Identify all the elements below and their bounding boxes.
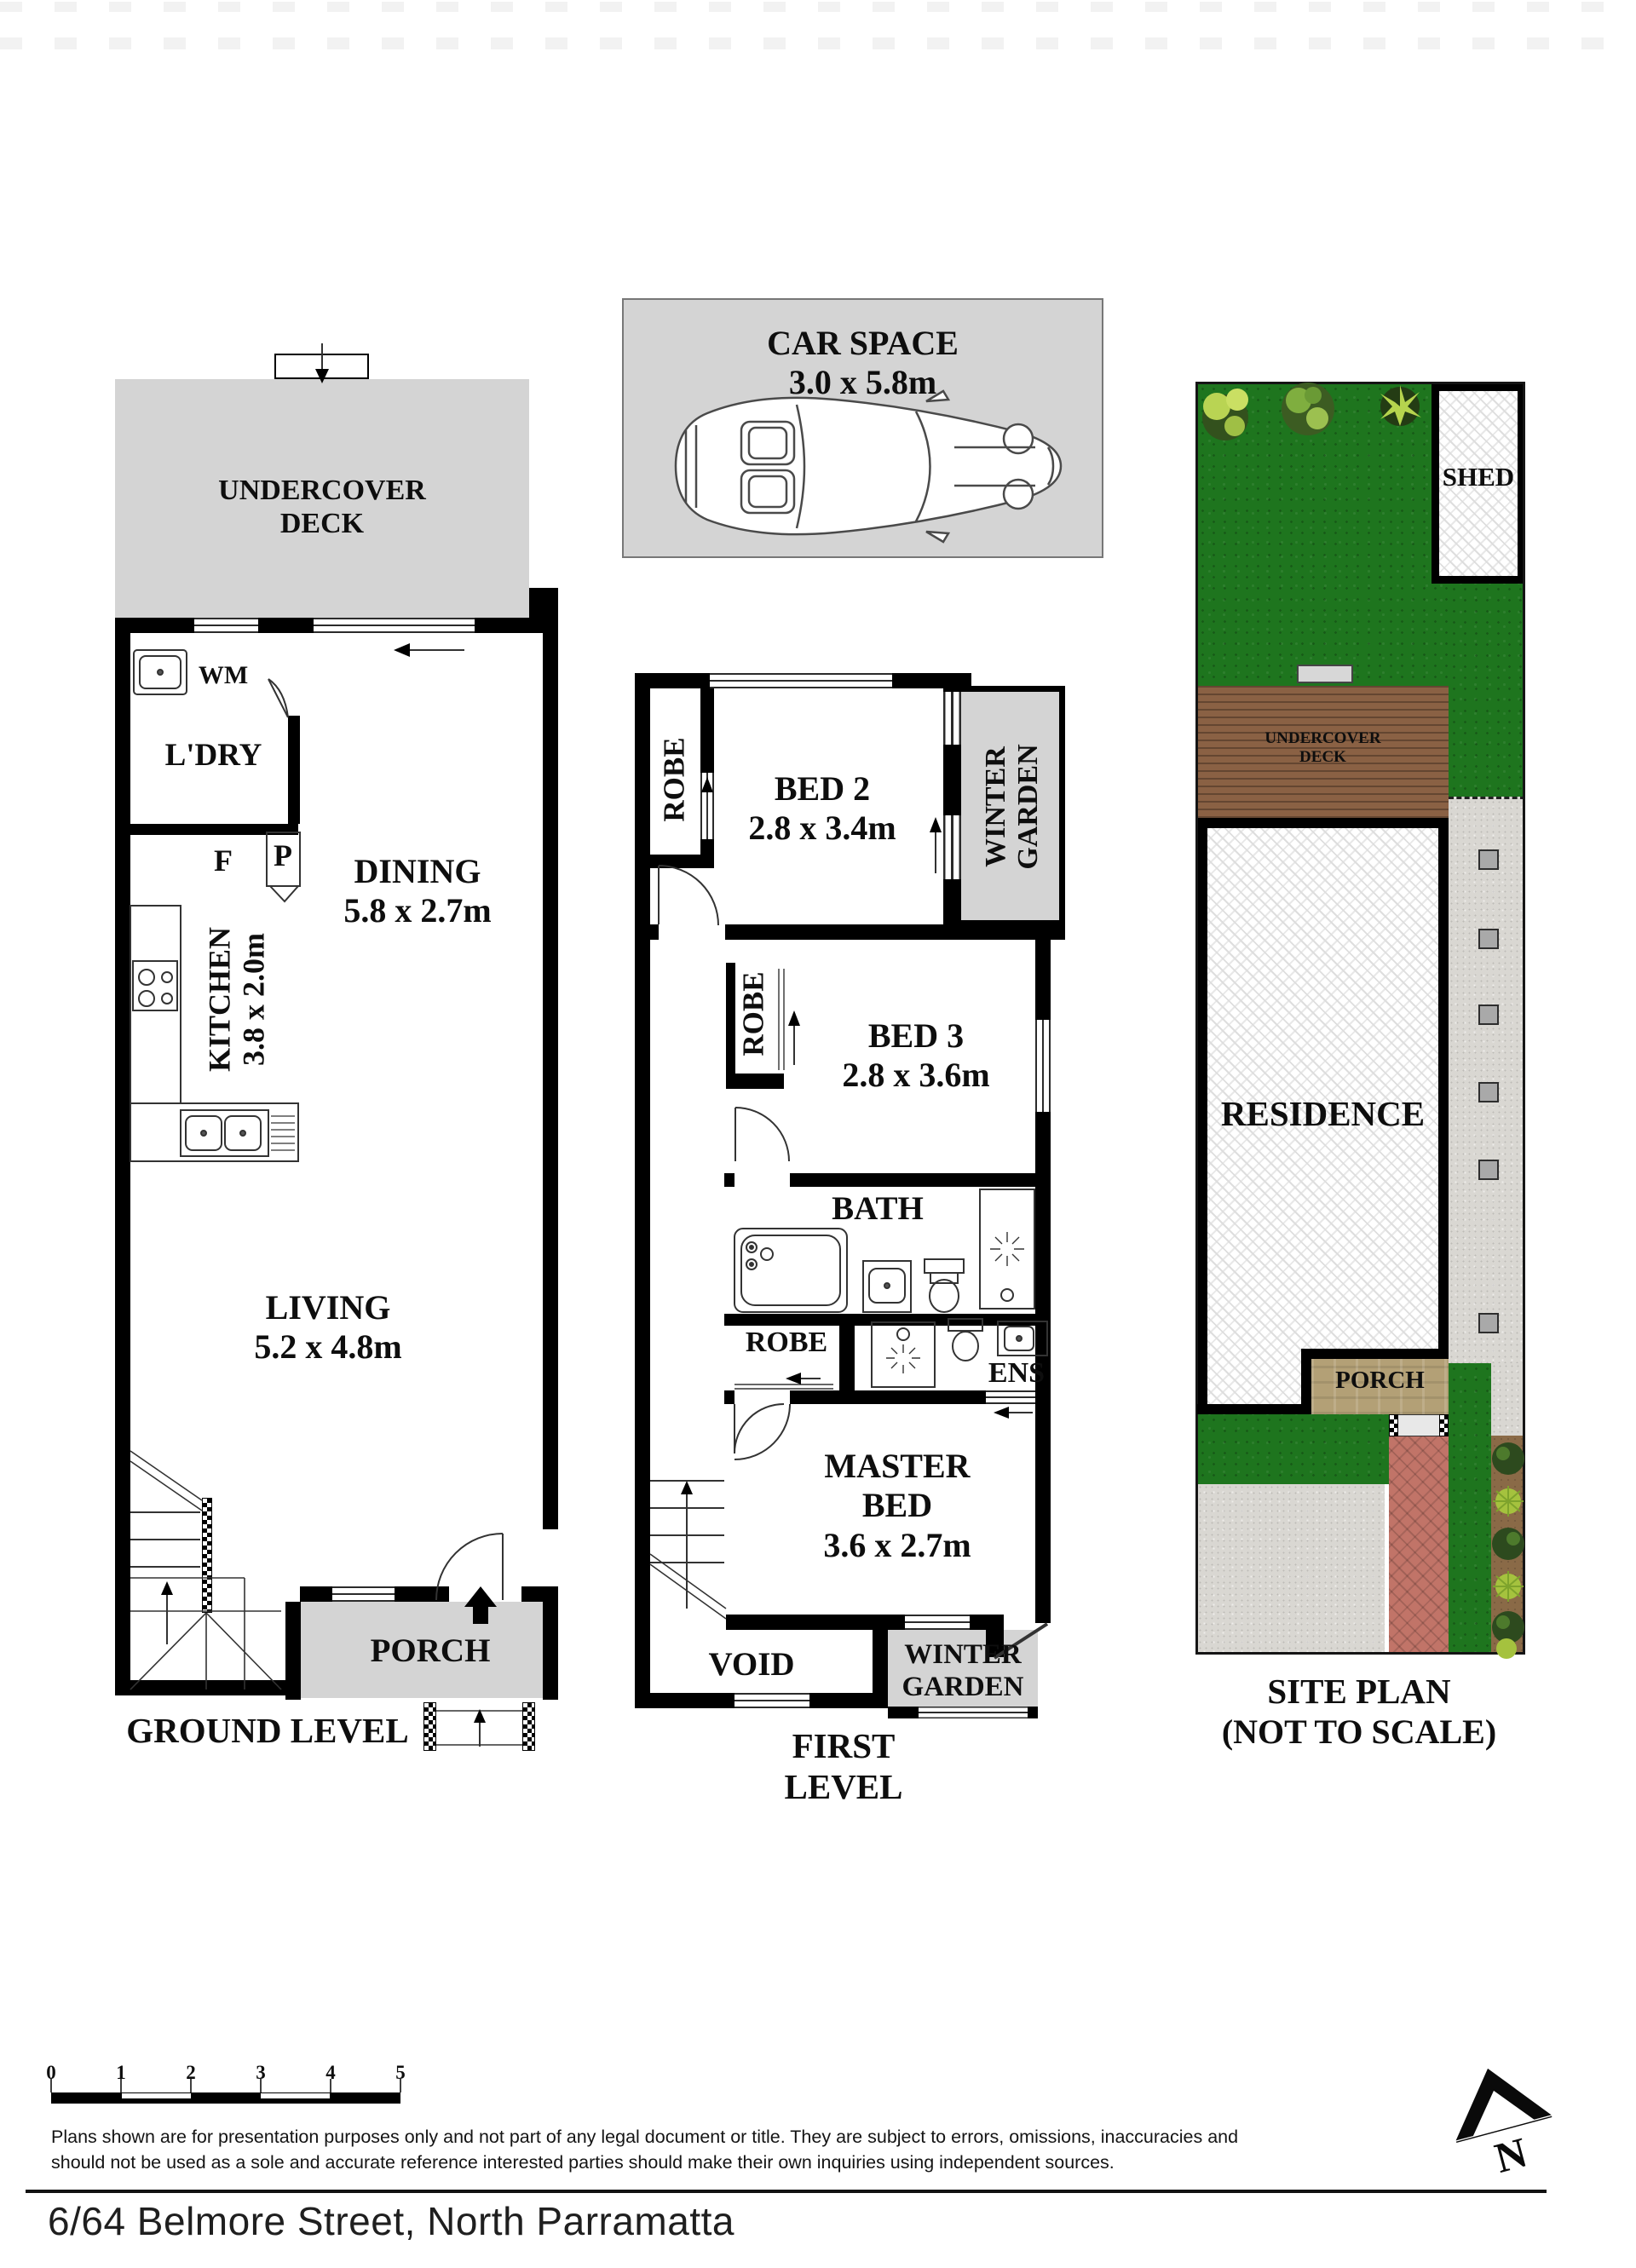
window bbox=[919, 1707, 1028, 1718]
wall bbox=[300, 1586, 332, 1602]
robe-sliding-door bbox=[700, 773, 714, 839]
wall bbox=[115, 618, 194, 633]
wall bbox=[115, 618, 130, 1695]
robe1-label: ROBE bbox=[657, 737, 690, 821]
wall bbox=[529, 588, 558, 618]
scale-seg bbox=[261, 2093, 331, 2103]
window bbox=[1035, 1020, 1051, 1112]
winter-garden-bottom-label: WINTER GARDEN bbox=[888, 1638, 1038, 1704]
ens-label: ENS bbox=[959, 1356, 1074, 1390]
living-dims: 5.2 x 4.8m bbox=[233, 1327, 423, 1367]
wall bbox=[888, 1707, 919, 1718]
bath-label: BATH bbox=[786, 1189, 969, 1228]
wall bbox=[521, 1586, 558, 1602]
shed-label: SHED bbox=[1438, 462, 1518, 492]
gate-post bbox=[1389, 1414, 1398, 1436]
residence-label: RESIDENCE bbox=[1207, 1094, 1438, 1135]
master-name: MASTER BED bbox=[802, 1447, 993, 1526]
window bbox=[943, 692, 961, 745]
wall bbox=[726, 1615, 888, 1630]
wm-label: WM bbox=[196, 661, 251, 691]
bed2-label: BED 2 2.8 x 3.4m bbox=[727, 769, 918, 849]
robe2-label: ROBE bbox=[736, 971, 769, 1056]
north-arrow-icon: N bbox=[1440, 2056, 1564, 2190]
window bbox=[332, 1586, 395, 1602]
window bbox=[734, 1693, 809, 1708]
gate-post bbox=[1439, 1414, 1449, 1436]
wall bbox=[635, 1693, 734, 1708]
living-name: LIVING bbox=[233, 1288, 423, 1327]
wall bbox=[115, 824, 298, 835]
wall bbox=[726, 1074, 784, 1089]
car-space-title: CAR SPACE bbox=[622, 324, 1103, 363]
scale-seg bbox=[330, 2093, 400, 2103]
site-boundary bbox=[1195, 382, 1525, 1655]
wall bbox=[1028, 1707, 1038, 1718]
porch-label: PORCH bbox=[339, 1632, 521, 1670]
dining-label: DINING 5.8 x 2.7m bbox=[322, 852, 513, 931]
wall bbox=[635, 673, 710, 688]
wall bbox=[115, 1680, 300, 1695]
wall bbox=[809, 1693, 888, 1708]
wall bbox=[650, 855, 714, 868]
dining-dims: 5.8 x 2.7m bbox=[322, 891, 513, 930]
kitchen-label: KITCHEN 3.8 x 2.0m bbox=[203, 927, 272, 1072]
master-bed-label: MASTER BED 3.6 x 2.7m bbox=[802, 1447, 993, 1565]
site-plan-title: SITE PLAN bbox=[1191, 1672, 1527, 1713]
wall bbox=[724, 1173, 734, 1187]
void-label: VOID bbox=[676, 1645, 827, 1684]
wall bbox=[635, 673, 650, 1708]
address-title: 6/64 Belmore Street, North Parramatta bbox=[48, 2198, 1241, 2244]
scale-tick-4: 4 bbox=[322, 2062, 339, 2085]
scale-tick-3: 3 bbox=[252, 2062, 269, 2085]
footer-divider bbox=[26, 2190, 1547, 2193]
wall bbox=[724, 1314, 1051, 1326]
wall bbox=[258, 618, 314, 633]
laundry-label: L'DRY bbox=[130, 738, 297, 774]
site-deck-label: UNDERCOVER DECK bbox=[1254, 729, 1391, 767]
wall bbox=[726, 963, 735, 1089]
fridge-label: F bbox=[203, 843, 244, 879]
scale-tick-5: 5 bbox=[392, 2062, 409, 2085]
site-plan-subtitle: (NOT TO SCALE) bbox=[1191, 1713, 1527, 1752]
wall bbox=[395, 1586, 449, 1602]
wall bbox=[1197, 1404, 1311, 1414]
window bbox=[986, 1390, 1035, 1404]
ground-deck-label: UNDERCOVER DECK bbox=[194, 474, 450, 541]
bed3-name: BED 3 bbox=[821, 1016, 1011, 1056]
disclaimer-line-2: should not be used as a sole and accurat… bbox=[51, 2152, 1304, 2173]
bed3-label: BED 3 2.8 x 3.6m bbox=[821, 1016, 1011, 1096]
bed3-dims: 2.8 x 3.6m bbox=[821, 1056, 1011, 1095]
scale-tick-1: 1 bbox=[112, 2062, 130, 2085]
kitchen-dims: 3.8 x 2.0m bbox=[237, 927, 271, 1072]
wall bbox=[700, 688, 714, 773]
wall bbox=[790, 1173, 1051, 1187]
scale-bar bbox=[51, 2092, 400, 2104]
scale-seg bbox=[122, 2093, 192, 2103]
porch-step-pier bbox=[522, 1702, 535, 1751]
scale-tick-2: 2 bbox=[182, 2062, 199, 2085]
wall bbox=[543, 618, 558, 1529]
wall bbox=[285, 1602, 301, 1700]
window bbox=[194, 618, 258, 633]
north-label: N bbox=[1490, 2128, 1532, 2182]
dining-name: DINING bbox=[322, 852, 513, 891]
sliding-door-window bbox=[314, 618, 475, 633]
disclaimer-line-1: Plans shown are for presentation purpose… bbox=[51, 2127, 1304, 2148]
living-label: LIVING 5.2 x 4.8m bbox=[233, 1288, 423, 1367]
kitchen-name: KITCHEN bbox=[203, 927, 237, 1072]
scale-seg bbox=[52, 2093, 122, 2103]
stair-newel bbox=[202, 1498, 212, 1613]
wall bbox=[725, 924, 943, 940]
winter-garden-top-label: WINTER GARDEN bbox=[980, 743, 1045, 871]
wall bbox=[790, 1390, 986, 1404]
window bbox=[943, 815, 961, 879]
robe3-label: ROBE bbox=[729, 1326, 844, 1359]
site-porch-label: PORCH bbox=[1315, 1367, 1445, 1396]
deck-entry-marker bbox=[274, 354, 369, 379]
car-space-dims: 3.0 x 5.8m bbox=[622, 363, 1103, 402]
bed2-name: BED 2 bbox=[727, 769, 918, 809]
window bbox=[905, 1615, 970, 1630]
scale-tick-0: 0 bbox=[43, 2062, 60, 2085]
watermark-strip bbox=[0, 2, 1636, 12]
ground-level-title: GROUND LEVEL bbox=[104, 1711, 431, 1752]
scale-seg bbox=[191, 2093, 261, 2103]
wall bbox=[888, 1615, 905, 1630]
wall bbox=[724, 1390, 734, 1404]
pantry-label: P bbox=[264, 838, 302, 874]
floorplan-page: CAR SPACE 3.0 x 5.8m UNDERCOVER DECK WM … bbox=[0, 0, 1636, 2268]
bed2-dims: 2.8 x 3.4m bbox=[727, 809, 918, 848]
wall bbox=[1301, 1349, 1449, 1359]
watermark-strip bbox=[0, 37, 1636, 49]
window bbox=[710, 673, 892, 688]
first-level-title: FIRST LEVEL bbox=[731, 1726, 956, 1807]
master-dims: 3.6 x 2.7m bbox=[802, 1526, 993, 1565]
wall bbox=[543, 1600, 558, 1700]
wall bbox=[650, 924, 659, 940]
